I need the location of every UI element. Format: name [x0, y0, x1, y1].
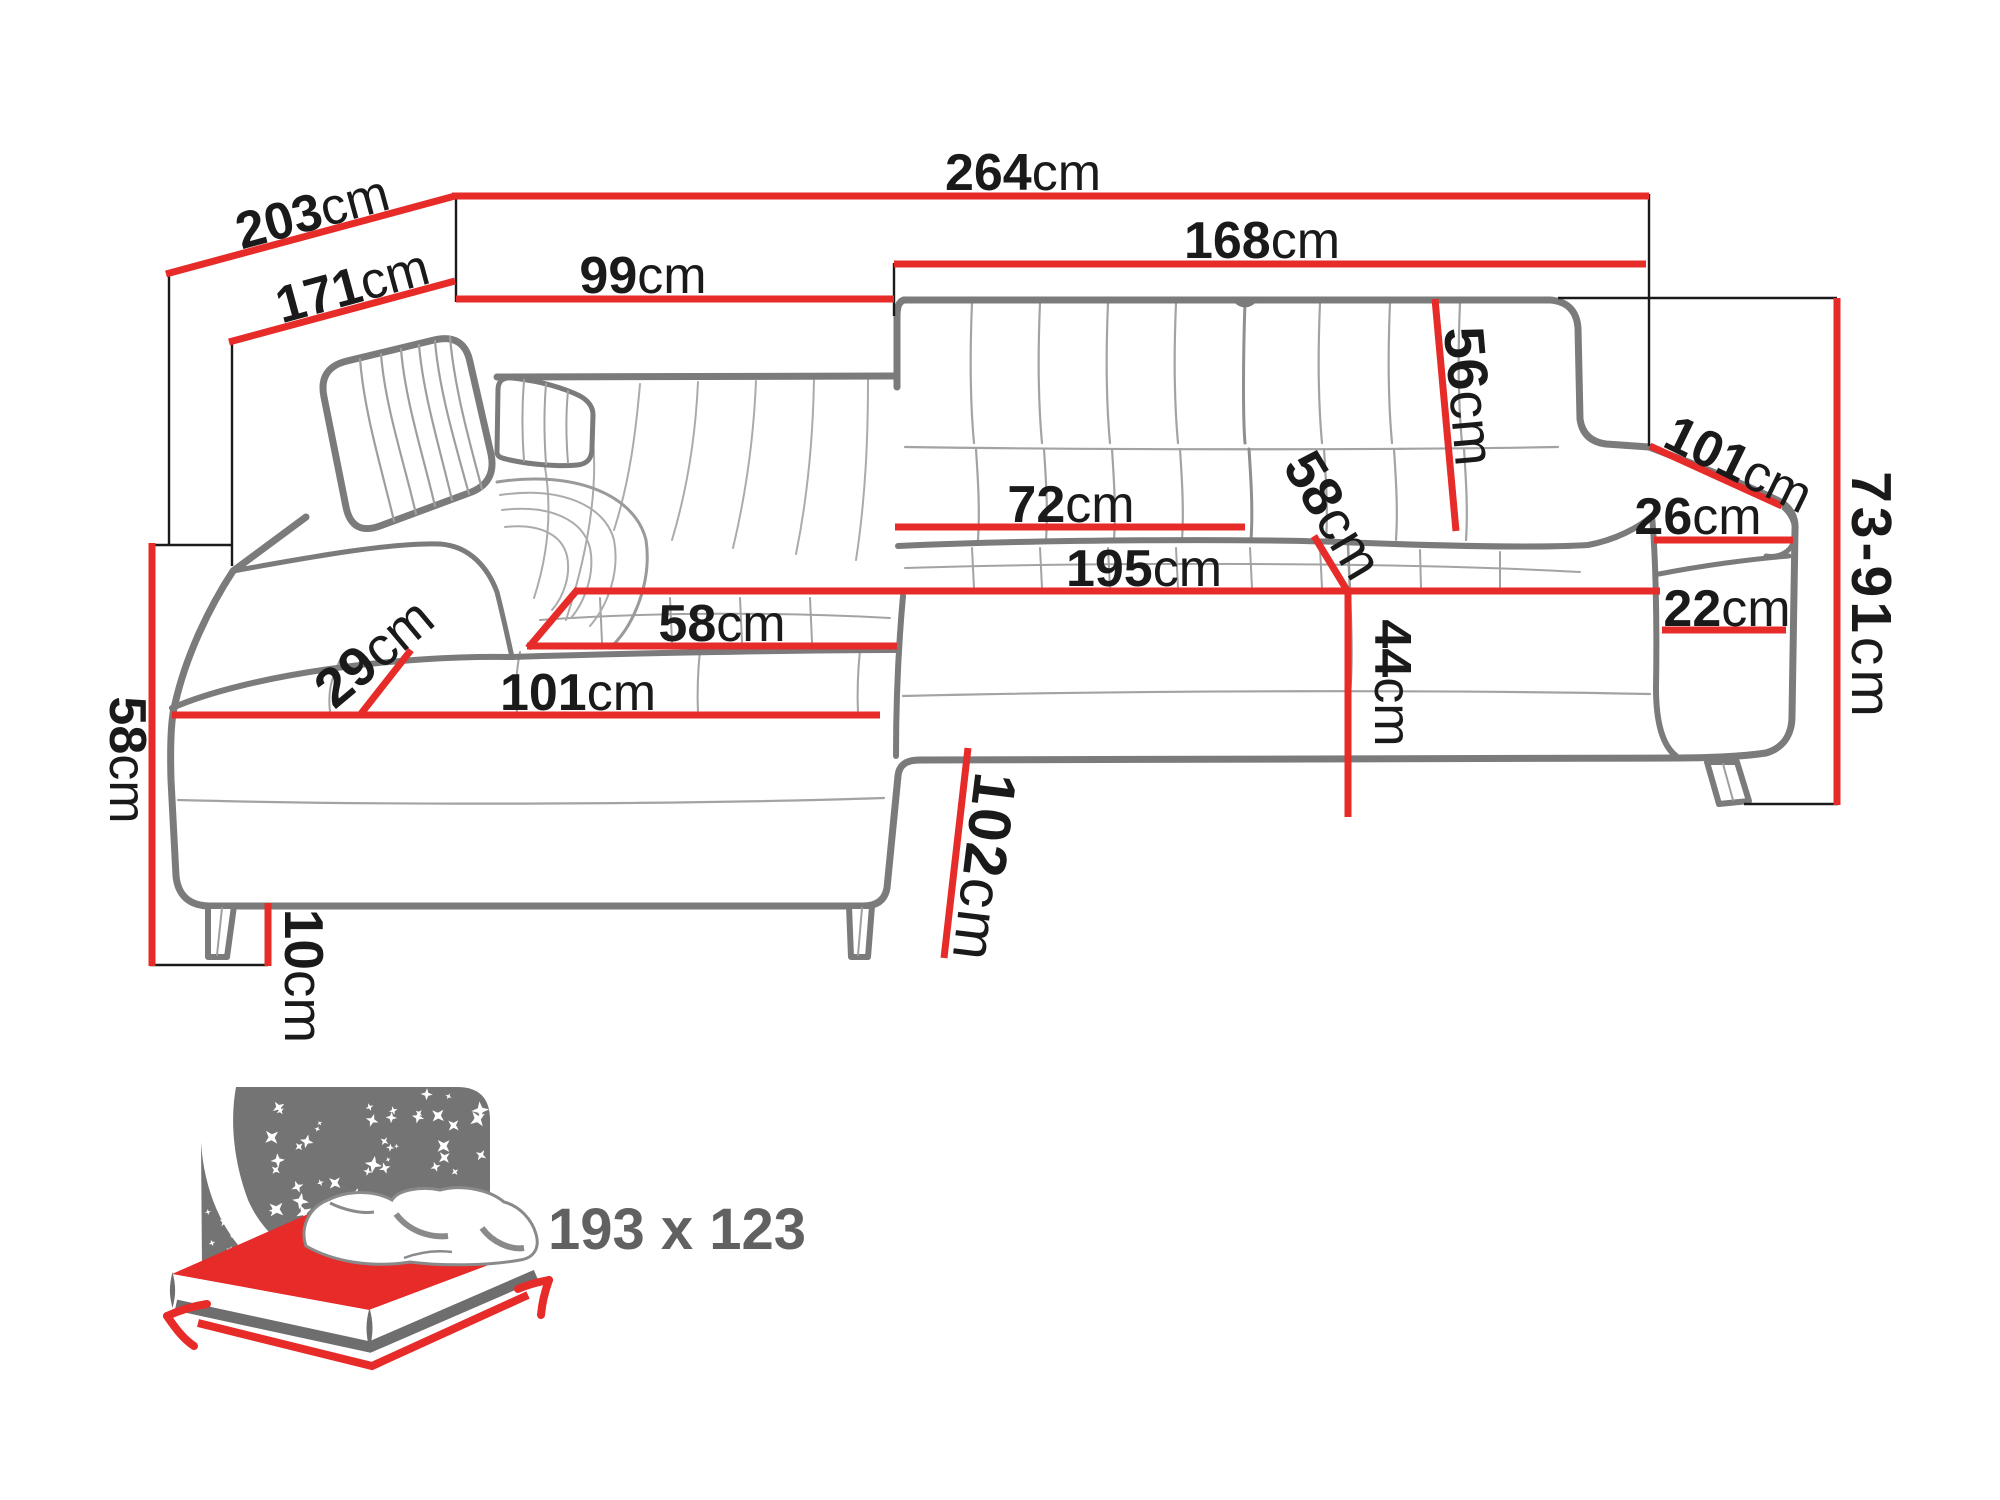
svg-text:195cm: 195cm [1066, 540, 1222, 598]
svg-text:264cm: 264cm [945, 144, 1101, 202]
svg-text:44cm: 44cm [1363, 619, 1421, 746]
svg-text:58cm: 58cm [658, 595, 785, 653]
svg-text:99cm: 99cm [579, 247, 706, 305]
svg-text:22cm: 22cm [1663, 580, 1790, 638]
svg-text:10cm: 10cm [273, 909, 335, 1044]
svg-text:168cm: 168cm [1184, 212, 1340, 270]
svg-text:56cm: 56cm [1431, 324, 1507, 468]
svg-text:26cm: 26cm [1634, 488, 1761, 546]
svg-text:58cm: 58cm [98, 696, 156, 823]
svg-text:73-91cm: 73-91cm [1839, 471, 1903, 721]
svg-text:101cm: 101cm [500, 664, 656, 722]
svg-text:72cm: 72cm [1007, 476, 1134, 534]
svg-text:193 x 123: 193 x 123 [548, 1197, 806, 1262]
